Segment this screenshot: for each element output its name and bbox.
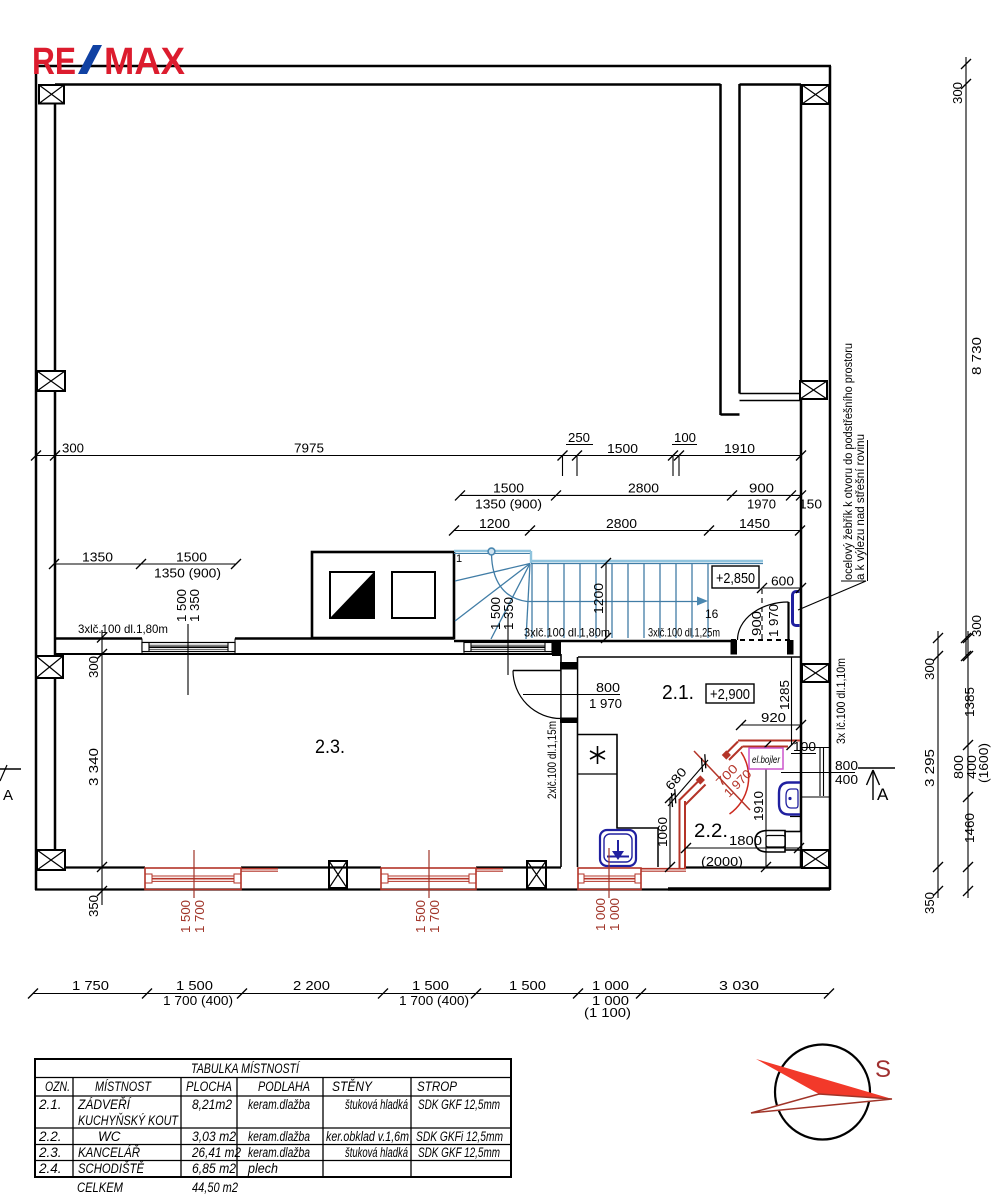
svg-text:900: 900 [750,611,764,636]
svg-text:1: 1 [456,553,462,565]
svg-text:1285: 1285 [778,680,792,710]
svg-text:1 970: 1 970 [589,697,622,711]
svg-text:1460: 1460 [963,813,977,843]
svg-text:3x lč.100 dl.1,10m: 3x lč.100 dl.1,10m [834,658,848,744]
svg-text:2800: 2800 [606,517,637,531]
svg-text:6,85 m2: 6,85 m2 [192,1161,236,1176]
svg-text:300: 300 [87,656,101,678]
svg-text:920: 920 [761,711,786,725]
svg-text:800: 800 [952,755,966,779]
svg-text:3,03 m2: 3,03 m2 [192,1129,236,1144]
svg-text:1910: 1910 [724,442,755,456]
svg-text:2800: 2800 [628,482,659,496]
svg-text:1350 (900): 1350 (900) [475,498,542,512]
svg-text:(1600): (1600) [977,743,991,783]
svg-text:1 500: 1 500 [175,589,189,622]
svg-text:keram.dlažba: keram.dlažba [248,1129,310,1144]
svg-text:1970: 1970 [747,498,776,512]
svg-text:+2,850: +2,850 [716,570,755,587]
svg-text:16: 16 [705,607,719,621]
svg-text:300: 300 [923,658,937,680]
svg-text:1 700: 1 700 [193,900,207,933]
svg-text:8,21m2: 8,21m2 [192,1097,232,1112]
svg-text:2xlč.100 dl.1,15m: 2xlč.100 dl.1,15m [545,721,559,799]
svg-text:STROP: STROP [417,1079,457,1094]
svg-text:1500: 1500 [607,442,638,456]
svg-text:1200: 1200 [592,583,606,614]
svg-text:+2,900: +2,900 [710,686,750,703]
svg-text:SDK GKF 12,5mm: SDK GKF 12,5mm [418,1097,500,1112]
svg-text:1 970: 1 970 [767,604,781,637]
svg-text:100: 100 [793,740,816,754]
svg-text:3 295: 3 295 [923,749,937,787]
svg-text:350: 350 [87,895,101,917]
svg-text:7975: 7975 [294,442,324,456]
svg-text:1500: 1500 [493,482,524,496]
svg-text:el.bojler: el.bojler [752,755,781,766]
svg-text:800: 800 [596,681,620,695]
svg-text:ocelový žebřík k otvoru do pod: ocelový žebřík k otvoru do podstřešního … [843,343,855,580]
svg-text:S: S [875,1056,891,1083]
svg-text:1 750: 1 750 [72,979,109,993]
svg-text:1 500: 1 500 [414,900,428,933]
svg-text:1 500: 1 500 [179,900,193,933]
svg-text:ZÁDVEŘÍ: ZÁDVEŘÍ [77,1097,132,1112]
svg-text:1 500: 1 500 [509,979,546,993]
svg-text:ker.obklad v.1,6m: ker.obklad v.1,6m [326,1129,409,1144]
svg-text:26,41 m2: 26,41 m2 [191,1145,241,1160]
svg-text:1 700: 1 700 [428,900,442,933]
svg-text:1 700 (400): 1 700 (400) [399,994,469,1008]
svg-text:150: 150 [799,498,822,512]
svg-text:STĚNY: STĚNY [332,1079,373,1094]
svg-text:1 350: 1 350 [188,589,202,622]
svg-text:PODLAHA: PODLAHA [258,1079,310,1094]
svg-text:1 000: 1 000 [592,979,629,993]
svg-text:900: 900 [749,482,774,496]
svg-text:WC: WC [98,1129,121,1144]
svg-text:štuková hladká: štuková hladká [345,1097,408,1112]
svg-text:(2000): (2000) [701,855,743,869]
svg-text:CELKEM: CELKEM [77,1180,124,1195]
svg-text:100: 100 [674,431,696,445]
svg-text:350: 350 [923,892,937,914]
svg-text:1350: 1350 [82,551,113,565]
svg-text:44,50 m2: 44,50 m2 [192,1180,238,1195]
svg-text:2 200: 2 200 [293,979,330,993]
svg-text:štuková hladká: štuková hladká [345,1145,408,1160]
svg-text:2.2.: 2.2. [694,821,728,842]
svg-text:MÍSTNOST: MÍSTNOST [95,1079,152,1094]
svg-text:8 730: 8 730 [970,337,984,375]
svg-text:2.2.: 2.2. [38,1129,62,1144]
svg-text:1 000: 1 000 [608,898,622,931]
svg-text:300: 300 [951,82,965,104]
svg-text:MAX: MAX [104,41,186,83]
svg-text:3 030: 3 030 [719,979,759,993]
svg-text:300: 300 [62,442,84,456]
svg-text:KUCHYŇSKÝ KOUT: KUCHYŇSKÝ KOUT [78,1113,179,1128]
svg-text:(1 100): (1 100) [584,1006,631,1020]
svg-text:3xlč.100 dl.1,25m: 3xlč.100 dl.1,25m [648,626,720,640]
svg-text:1060: 1060 [656,817,670,847]
svg-text:3xlč.100 dl.1,80m: 3xlč.100 dl.1,80m [78,622,168,636]
svg-text:keram.dlažba: keram.dlažba [248,1097,310,1112]
svg-text:3 340: 3 340 [87,748,101,786]
svg-text:A: A [877,785,889,804]
svg-text:250: 250 [568,431,590,445]
svg-text:1 500: 1 500 [176,979,213,993]
svg-text:1910: 1910 [752,791,766,821]
svg-text:400: 400 [835,773,858,787]
svg-text:800: 800 [835,759,858,773]
svg-text:1 700 (400): 1 700 (400) [163,994,233,1008]
svg-text:2.3.: 2.3. [38,1145,62,1160]
svg-text:SDK GKF 12,5mm: SDK GKF 12,5mm [418,1145,500,1160]
svg-text:2.1.: 2.1. [38,1097,62,1112]
svg-text:OZN.: OZN. [45,1079,70,1094]
svg-text:1800: 1800 [729,834,762,848]
svg-text:TABULKA MÍSTNOSTÍ: TABULKA MÍSTNOSTÍ [191,1061,301,1076]
svg-text:1 500: 1 500 [412,979,449,993]
svg-text:600: 600 [771,575,794,589]
svg-text:keram.dlažba: keram.dlažba [248,1145,310,1160]
svg-text:SCHODIŠTĚ: SCHODIŠTĚ [78,1161,145,1176]
svg-text:SDK GKFi 12,5mm: SDK GKFi 12,5mm [416,1129,503,1144]
svg-text:1500: 1500 [176,551,207,565]
svg-text:1 500: 1 500 [489,597,503,630]
svg-text:1350 (900): 1350 (900) [154,567,221,581]
svg-text:2.4.: 2.4. [38,1161,62,1176]
svg-text:2.1.: 2.1. [662,682,694,704]
svg-text:1 350: 1 350 [502,597,516,630]
svg-text:RE: RE [32,41,76,83]
svg-text:KANCELÁŘ: KANCELÁŘ [78,1145,140,1160]
svg-text:PLOCHA: PLOCHA [186,1079,232,1094]
svg-text:3xlč.100 dl.1,80m: 3xlč.100 dl.1,80m [524,626,610,640]
svg-text:A: A [3,787,13,804]
svg-text:1200: 1200 [479,517,510,531]
svg-text:1385: 1385 [963,687,977,717]
svg-text:1 000: 1 000 [594,898,608,931]
svg-text:a k výlezu nad střešní rovinu: a k výlezu nad střešní rovinu [855,434,867,580]
svg-text:1450: 1450 [739,517,770,531]
svg-text:2.3.: 2.3. [315,737,345,758]
svg-text:plech: plech [247,1161,278,1176]
